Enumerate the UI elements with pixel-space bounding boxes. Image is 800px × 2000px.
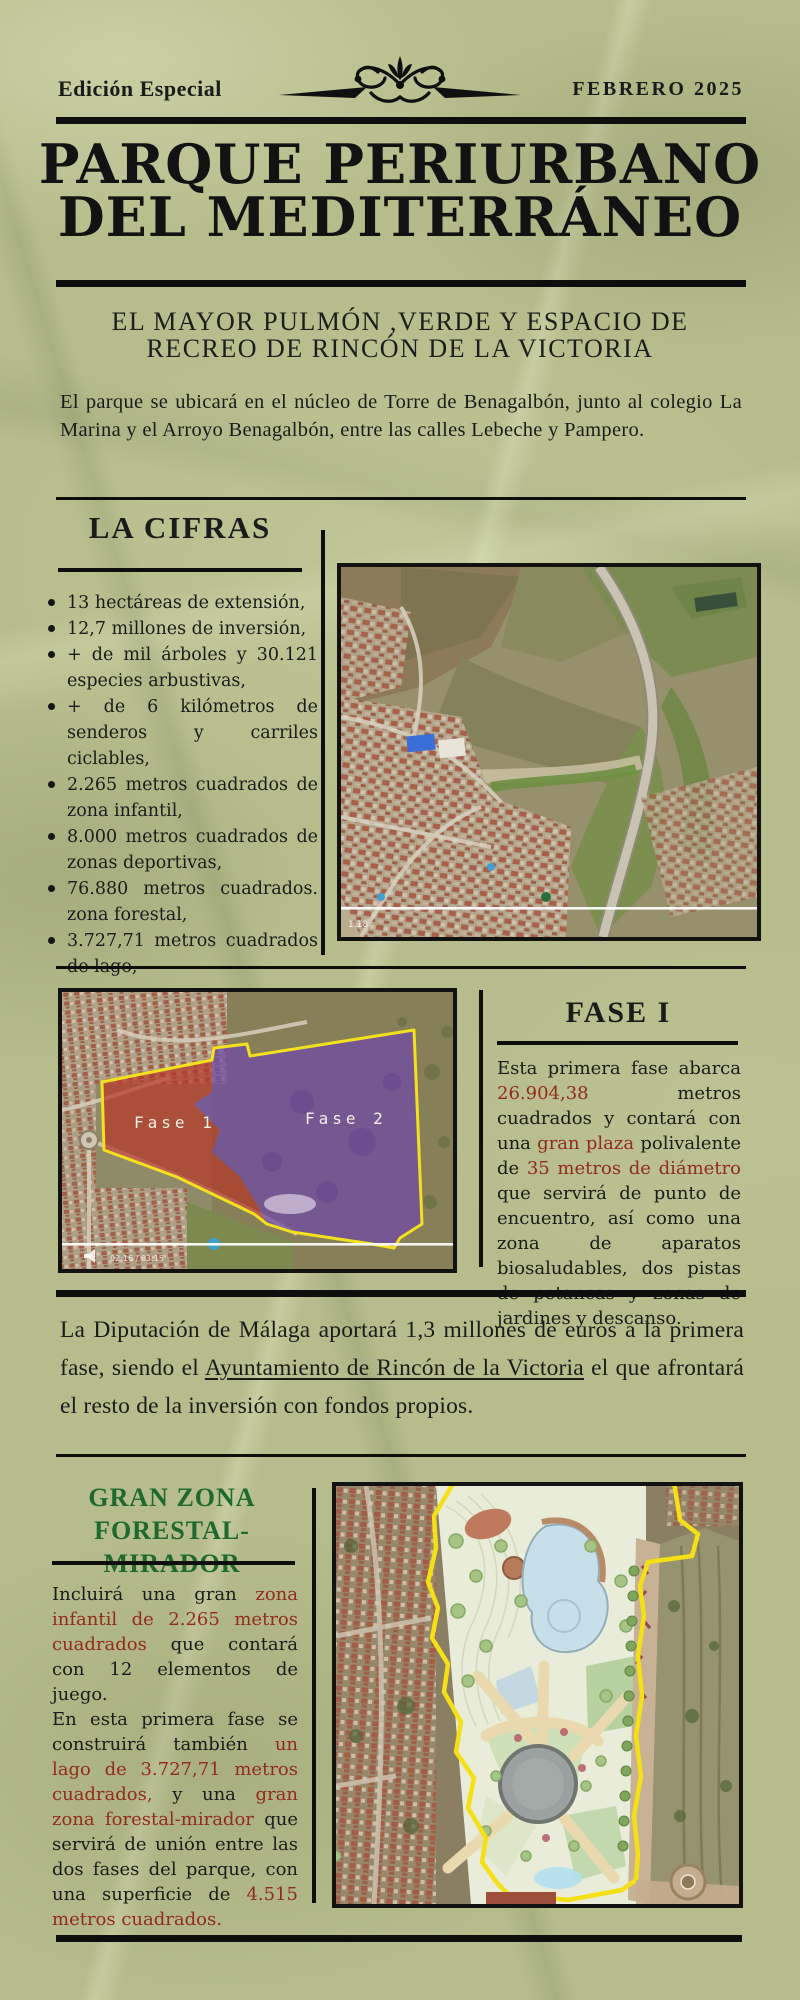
divider-rule: [56, 1290, 746, 1297]
divider-rule: [56, 1935, 742, 1942]
flourish-ornament-icon: [275, 50, 525, 116]
cifras-item: 12,7 millones de inversión,: [46, 616, 318, 642]
video-progress-bar[interactable]: [341, 907, 757, 910]
heading-underline: [58, 568, 302, 572]
page-title: PARQUE PERIURBANO DEL MEDITERRÁNEO: [0, 138, 800, 244]
cifras-heading: LA CIFRAS: [50, 510, 310, 546]
fase-map-image: Fase 1 Fase 2 02:16 / 03:15: [58, 988, 457, 1273]
cifras-item: 2.265 metros cuadrados de zona infantil,: [46, 772, 318, 824]
video-progress-bar[interactable]: [62, 1243, 453, 1246]
cifras-item: 8.000 metros cuadrados de zonas deportiv…: [46, 824, 318, 876]
fase2-map-label: Fase 2: [305, 1109, 387, 1128]
aerial-overview-image: 1:18: [337, 563, 761, 941]
text-run: En esta primera fase se construirá tambi…: [52, 1709, 298, 1755]
video-time-label: 02:16 / 03:15: [110, 1254, 164, 1263]
divider-rule: [56, 1454, 746, 1457]
fase1-map-label: Fase 1: [134, 1113, 216, 1132]
video-time-label: 1:18: [348, 920, 368, 930]
text-run: que servirá de punto de encuentro, así c…: [497, 1183, 741, 1329]
newsletter-page: Edición Especial: [0, 0, 800, 2000]
heading-underline: [52, 1561, 295, 1565]
cifras-item: + de 6 kilómetros de senderos y carriles…: [46, 694, 318, 772]
divider-rule: [56, 280, 746, 287]
subtitle: EL MAYOR PULMÓN ,VERDE Y ESPACIO DE RECR…: [0, 308, 800, 362]
granzona-paragraph: Incluirá una gran zona infantil de 2.265…: [52, 1582, 298, 1932]
granzona-heading-line1: GRAN ZONA: [88, 1483, 255, 1512]
text-run: y una: [153, 1784, 256, 1805]
fase1-heading: FASE I: [497, 996, 740, 1030]
text-run: gran plaza: [537, 1133, 634, 1154]
divider-rule: [56, 497, 746, 500]
text-run: Ayuntamiento de Rincón de la Victoria: [205, 1355, 584, 1381]
issue-date: FEBRERO 2025: [572, 78, 744, 101]
cifras-item: 3.727,71 metros cuadrados de lago,: [46, 928, 318, 980]
heading-underline: [497, 1041, 738, 1045]
text-run: 35 metros de diámetro: [527, 1158, 741, 1179]
granzona-heading-line2: FORESTAL-MIRADOR: [94, 1516, 250, 1578]
text-run: Incluirá una gran: [52, 1584, 255, 1605]
divider-rule: [56, 117, 746, 124]
intro-paragraph: El parque se ubicará en el núcleo de Tor…: [60, 389, 742, 444]
edition-label: Edición Especial: [58, 76, 222, 102]
park-plan-image: [332, 1482, 743, 1908]
vertical-divider: [312, 1488, 316, 1903]
cifras-item: 76.880 metros cuadrados. zona forestal,: [46, 876, 318, 928]
subtitle-line1: EL MAYOR PULMÓN ,VERDE Y ESPACIO DE: [111, 307, 688, 336]
vertical-divider: [321, 530, 325, 955]
vertical-divider: [479, 990, 483, 1267]
subtitle-line2: RECREO DE RINCÓN DE LA VICTORIA: [146, 334, 653, 363]
cifras-item: + de mil árboles y 30.121 especies arbus…: [46, 642, 318, 694]
cifras-list: 13 hectáreas de extensión,12,7 millones …: [46, 590, 318, 980]
cifras-item: 13 hectáreas de extensión,: [46, 590, 318, 616]
divider-rule: [56, 966, 746, 969]
funding-paragraph: La Diputación de Málaga aportará 1,3 mil…: [60, 1311, 744, 1425]
text-run: Esta primera fase abarca: [497, 1058, 741, 1079]
granzona-heading: GRAN ZONA FORESTAL-MIRADOR: [38, 1481, 306, 1580]
text-run: 26.904,38: [497, 1083, 589, 1104]
page-title-line2: DEL MEDITERRÁNEO: [58, 185, 742, 249]
